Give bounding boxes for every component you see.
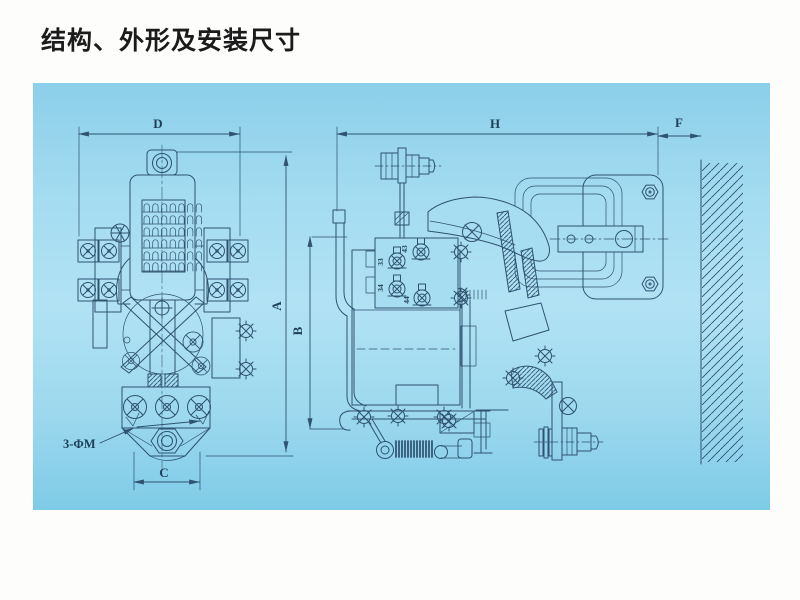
page-title: 结构、外形及安装尺寸 xyxy=(41,28,301,55)
dimension-F: F xyxy=(658,115,701,136)
terminal-label-44: 44 xyxy=(402,296,411,304)
dimension-H: H xyxy=(337,116,658,211)
mounting-holes-label: 3-ΦM xyxy=(63,437,96,451)
dim-label-C: C xyxy=(159,465,168,480)
arc-chute-grid xyxy=(142,200,202,272)
terminal-label-34: 34 xyxy=(376,284,385,292)
return-spring xyxy=(396,439,472,459)
dim-label-H: H xyxy=(490,116,500,131)
dim-label-A: A xyxy=(269,301,284,311)
technical-drawing: 3-ΦM D A C xyxy=(33,83,770,510)
mounting-wall xyxy=(701,160,743,464)
spoked-washer xyxy=(111,224,129,242)
side-bolt xyxy=(534,427,603,458)
front-view: 3-ΦM D A C xyxy=(63,116,293,490)
dimension-C: C xyxy=(134,452,200,490)
terminal-label-33: 33 xyxy=(376,258,385,266)
dimension-D: D xyxy=(79,116,240,236)
dim-label-B: B xyxy=(290,326,305,335)
dim-label-F: F xyxy=(675,115,683,130)
blueprint-panel: 3-ΦM D A C xyxy=(33,83,770,510)
side-view: 43 33 34 44 xyxy=(290,115,743,464)
dim-label-D: D xyxy=(153,116,162,131)
dimension-B: B xyxy=(290,237,347,429)
dimension-A: A xyxy=(177,152,293,456)
terminal-label-43: 43 xyxy=(400,245,409,253)
